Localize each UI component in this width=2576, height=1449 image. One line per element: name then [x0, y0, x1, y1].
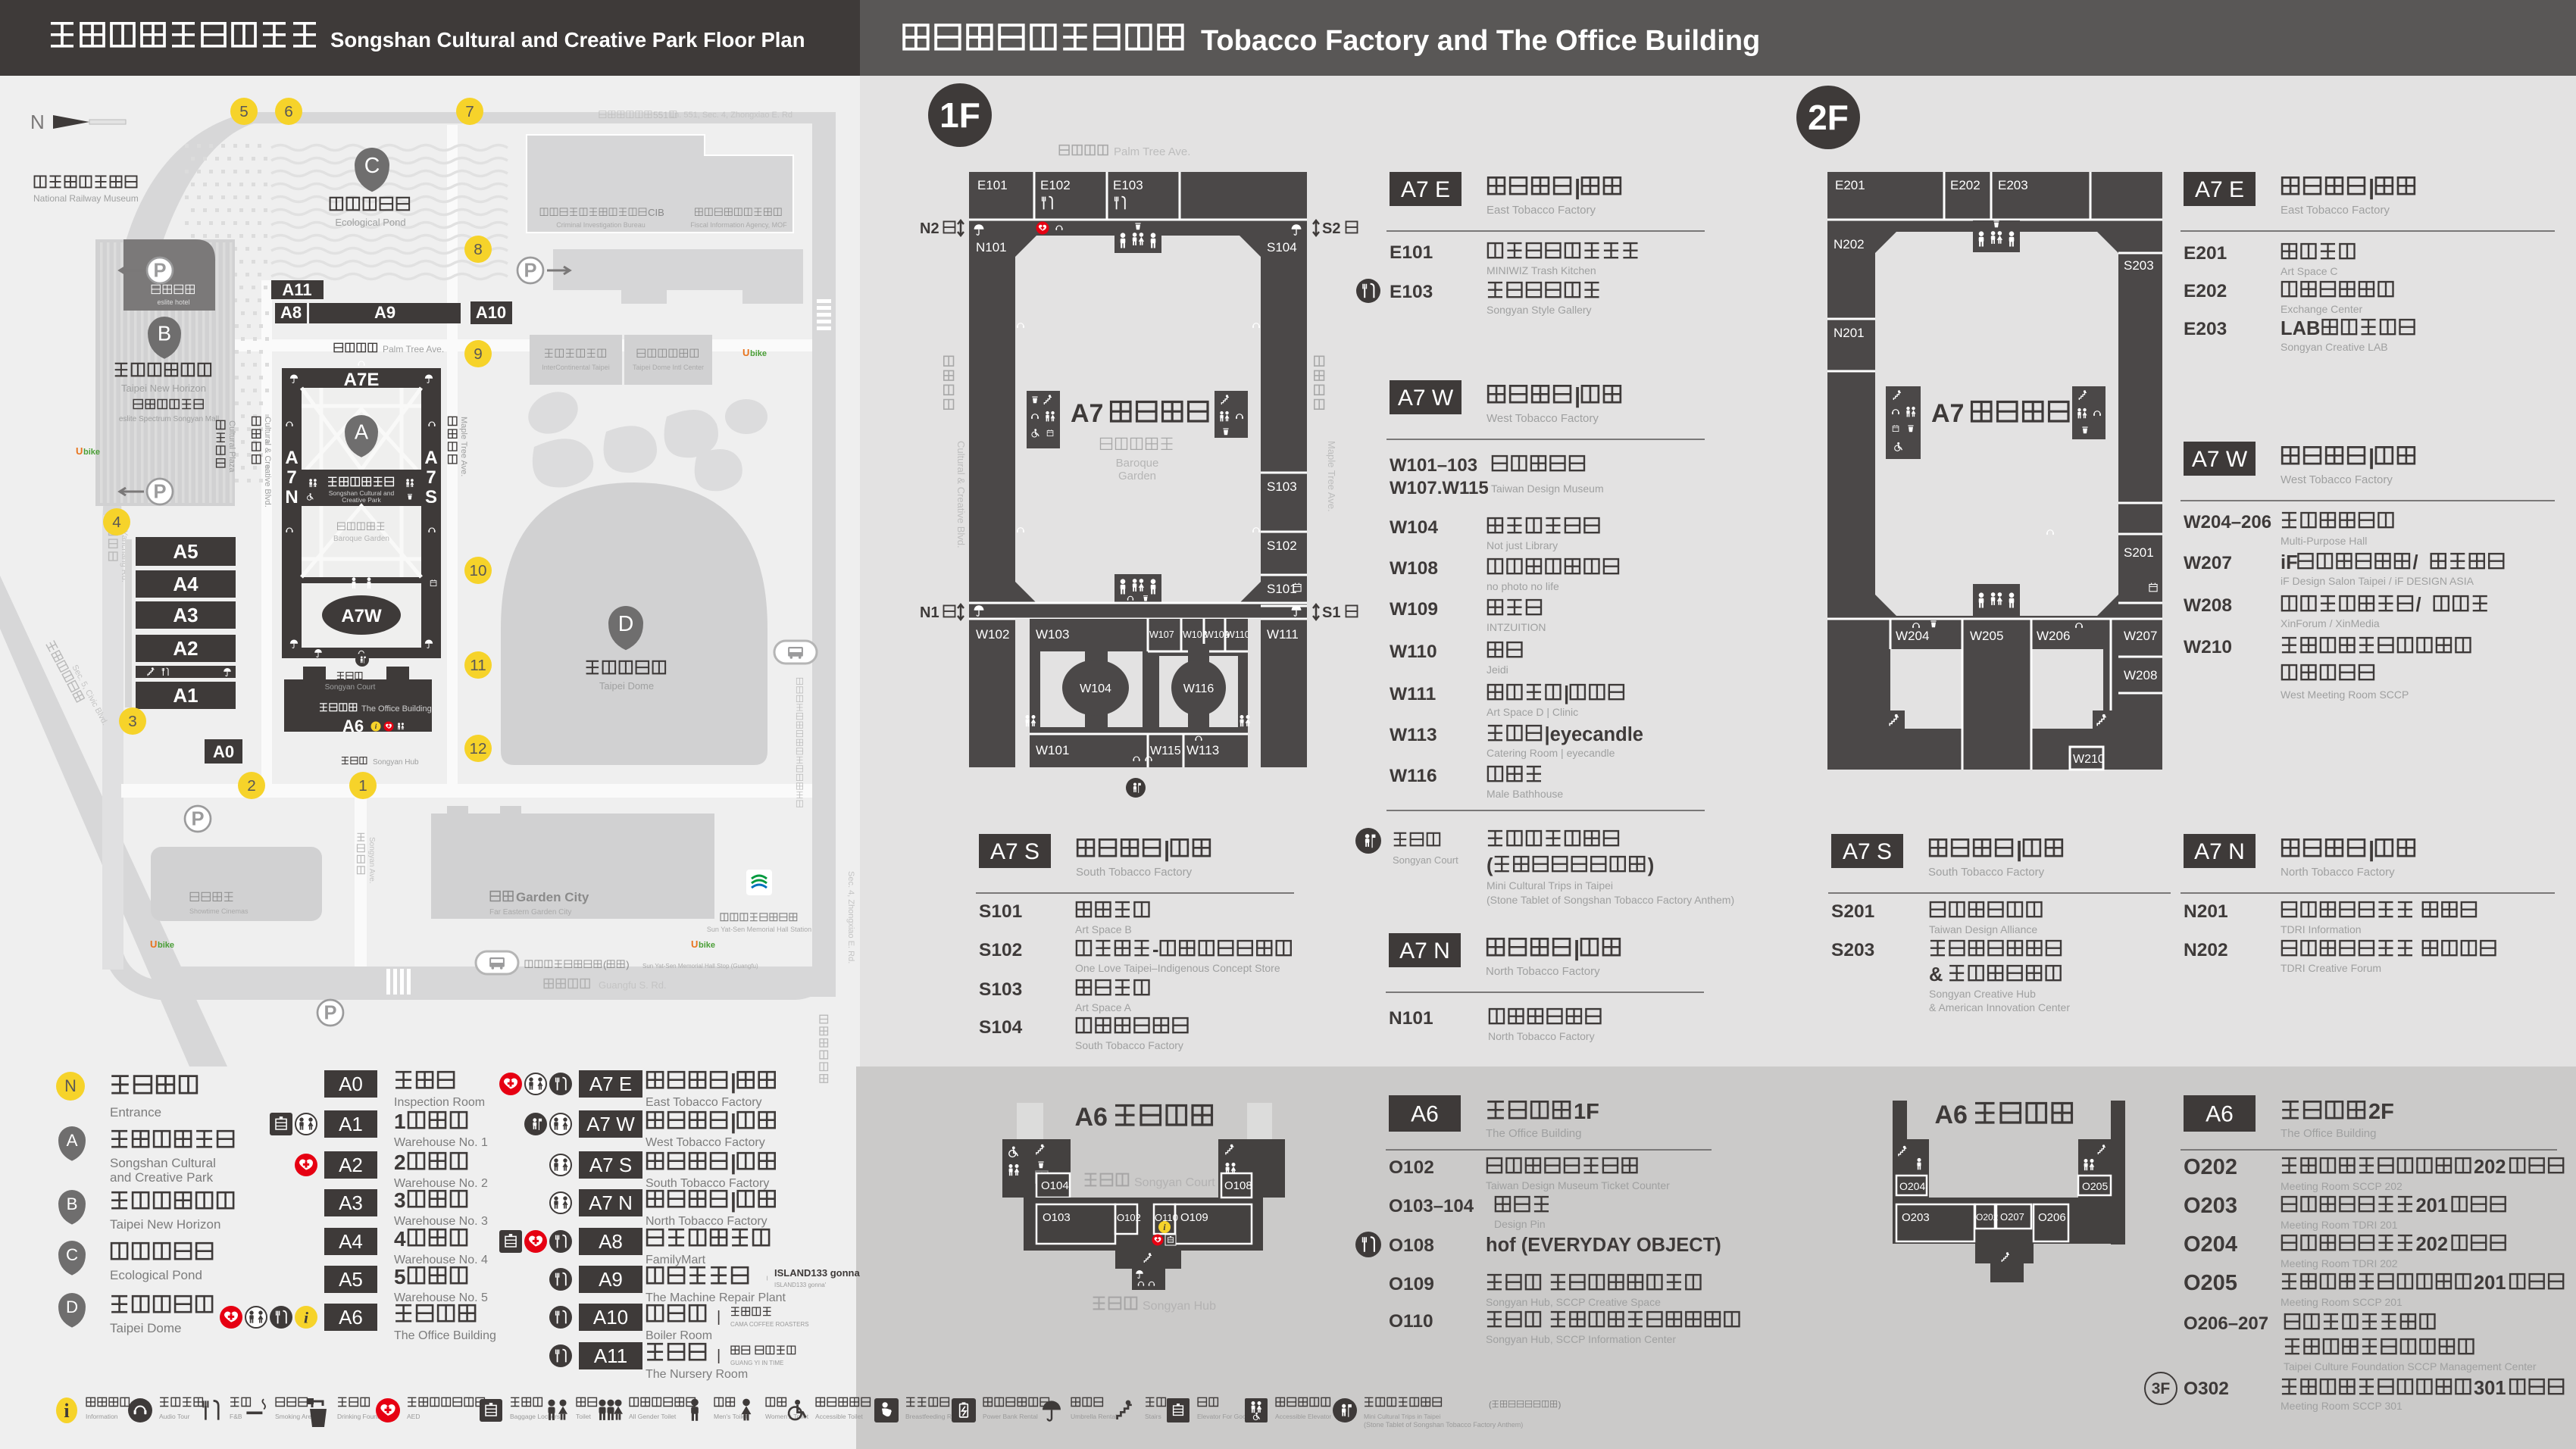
svg-text:S101: S101 — [1267, 582, 1297, 596]
svg-text:1F: 1F — [939, 95, 980, 135]
svg-text:bike: bike — [83, 448, 100, 457]
svg-text:B: B — [158, 322, 171, 345]
svg-text:7: 7 — [465, 103, 474, 120]
svg-text:The Machine Repair Plant: The Machine Repair Plant — [646, 1291, 786, 1304]
svg-text:The Office Building: The Office Building — [394, 1329, 496, 1342]
svg-text:202: 202 — [2416, 1234, 2449, 1255]
svg-text:Taipei New Horizon: Taipei New Horizon — [121, 383, 206, 394]
svg-text:P: P — [191, 809, 204, 830]
svg-text:A6: A6 — [2206, 1102, 2234, 1127]
svg-text:Exchange Center: Exchange Center — [2281, 303, 2363, 315]
svg-text:O206–207: O206–207 — [2184, 1313, 2268, 1334]
svg-text:A3: A3 — [339, 1191, 363, 1214]
svg-text:11: 11 — [470, 657, 486, 674]
svg-text:P: P — [524, 261, 536, 282]
svg-text:W107: W107 — [1149, 629, 1174, 640]
svg-text:Accessible Elevator: Accessible Elevator — [1275, 1413, 1331, 1420]
svg-text:Creative Park: Creative Park — [342, 496, 381, 504]
svg-text:Songyan Court: Songyan Court — [1134, 1176, 1215, 1189]
svg-text:1F: 1F — [1574, 1100, 1599, 1124]
svg-text:Toilet: Toilet — [576, 1413, 591, 1420]
svg-text:LAB: LAB — [2281, 318, 2320, 339]
svg-text:O203: O203 — [2184, 1194, 2237, 1218]
svg-text:W110: W110 — [1226, 629, 1250, 640]
svg-text:O108: O108 — [1389, 1235, 1434, 1256]
svg-text:O207: O207 — [2000, 1211, 2024, 1223]
svg-text:W204: W204 — [1896, 629, 1929, 643]
svg-text:GUANG YI IN TIME: GUANG YI IN TIME — [730, 1360, 783, 1366]
svg-text:3F: 3F — [2152, 1380, 2171, 1397]
svg-text:Songshan Cultural: Songshan Cultural — [110, 1156, 216, 1170]
svg-text:Stairs: Stairs — [1145, 1413, 1161, 1420]
svg-text:U: U — [691, 938, 698, 950]
svg-text:A7 E: A7 E — [589, 1073, 632, 1095]
svg-text:O202: O202 — [2184, 1155, 2237, 1179]
svg-text:AED: AED — [407, 1413, 420, 1420]
svg-text:E201: E201 — [2184, 243, 2227, 264]
svg-text:A6: A6 — [1411, 1102, 1439, 1127]
svg-text:Songshan Cultural and Creative: Songshan Cultural and Creative Park Floo… — [330, 28, 805, 52]
svg-text:A6: A6 — [1075, 1103, 1108, 1132]
svg-text:Ln. 551, Sec. 4, Zhongxiao E.: Ln. 551, Sec. 4, Zhongxiao E. Rd — [670, 111, 792, 120]
svg-text:A: A — [355, 420, 369, 444]
svg-text:Taipei Culture Foundation SCCP: Taipei Culture Foundation SCCP Managemen… — [2284, 1360, 2537, 1372]
svg-text:|: | — [730, 1188, 736, 1212]
svg-text:All Gender Toilet: All Gender Toilet — [629, 1413, 677, 1420]
svg-text:no photo no life: no photo no life — [1487, 580, 1559, 592]
svg-text:N1: N1 — [920, 604, 939, 621]
svg-text:U: U — [150, 938, 157, 950]
svg-text:N201: N201 — [2184, 901, 2228, 922]
svg-text:U: U — [76, 445, 83, 457]
svg-text:and Creative Park: and Creative Park — [110, 1170, 214, 1185]
svg-text:Design Pin: Design Pin — [1494, 1218, 1546, 1230]
svg-text:A7 E: A7 E — [1401, 177, 1450, 202]
svg-text:Songyan Hub: Songyan Hub — [373, 758, 419, 767]
svg-text:Cultural Plaza: Cultural Plaza — [227, 420, 236, 473]
svg-text:eslite hotel: eslite hotel — [157, 298, 189, 306]
svg-text:Taiwan Design Alliance: Taiwan Design Alliance — [1929, 923, 2037, 935]
svg-text:Power Bank Rental: Power Bank Rental — [983, 1413, 1038, 1420]
svg-text:A7E: A7E — [344, 370, 380, 390]
svg-text:W206: W206 — [2037, 629, 2070, 643]
svg-text:S103: S103 — [1267, 479, 1297, 494]
svg-text:E101: E101 — [1390, 242, 1433, 263]
svg-text:O205: O205 — [2082, 1180, 2108, 1192]
svg-text:Meeting Room SCCP 301: Meeting Room SCCP 301 — [2281, 1400, 2402, 1412]
svg-text:W107.W115: W107.W115 — [1390, 478, 1489, 498]
svg-text:Songyan Court: Songyan Court — [325, 683, 376, 692]
svg-text:Warehouse No. 1: Warehouse No. 1 — [394, 1136, 488, 1149]
svg-text:(: ( — [1487, 855, 1493, 876]
svg-text:Cultural & Creative Blvd.: Cultural & Creative Blvd. — [263, 417, 272, 507]
svg-text:S201: S201 — [2124, 545, 2154, 560]
svg-text:4: 4 — [112, 514, 121, 531]
svg-text:Palm Tree Ave.: Palm Tree Ave. — [1114, 145, 1190, 158]
svg-text:A7 N: A7 N — [589, 1191, 633, 1214]
svg-text:Taiwan Design Museum: Taiwan Design Museum — [1491, 482, 1604, 495]
svg-text:South Tobacco Factory: South Tobacco Factory — [646, 1177, 769, 1190]
svg-text:Audio Tour: Audio Tour — [159, 1413, 190, 1420]
svg-text:201: 201 — [2416, 1195, 2449, 1216]
svg-text:W116: W116 — [1390, 766, 1437, 786]
svg-text:E202: E202 — [1950, 178, 1980, 192]
svg-text:A8: A8 — [280, 303, 302, 322]
svg-text:Art Space D | Clinic: Art Space D | Clinic — [1487, 706, 1578, 718]
svg-text:The Office Building: The Office Building — [361, 704, 432, 714]
svg-text:Baroque Garden: Baroque Garden — [333, 535, 389, 543]
svg-text:/: / — [2413, 552, 2418, 573]
svg-text:P: P — [324, 1003, 336, 1024]
svg-text:W207: W207 — [2124, 629, 2157, 643]
svg-text:E102: E102 — [1040, 178, 1071, 192]
svg-text:W108: W108 — [1390, 558, 1438, 579]
svg-text:A7: A7 — [1071, 399, 1103, 428]
svg-text:Taipei Dome: Taipei Dome — [599, 680, 654, 692]
svg-text:): ) — [1648, 855, 1655, 876]
svg-text:W210: W210 — [2073, 753, 2105, 766]
svg-text:(Stone Tablet of Songshan Toba: (Stone Tablet of Songshan Tobacco Factor… — [1487, 894, 1734, 906]
svg-text:Garden City: Garden City — [516, 890, 589, 904]
svg-text:202: 202 — [2474, 1157, 2506, 1178]
svg-text:Songyan Hub, SCCP Information: Songyan Hub, SCCP Information Center — [1486, 1333, 1676, 1345]
svg-text:Ecological Pond: Ecological Pond — [335, 217, 405, 228]
svg-text:A3: A3 — [173, 604, 198, 626]
svg-text:Maple Tree Ave.: Maple Tree Ave. — [459, 417, 468, 476]
svg-text:West Meeting Room SCCP: West Meeting Room SCCP — [2281, 689, 2409, 701]
svg-text:A0: A0 — [213, 742, 234, 761]
svg-text:A5: A5 — [339, 1268, 363, 1291]
svg-text:& American Innovation Center: & American Innovation Center — [1929, 1001, 2070, 1013]
svg-text:4: 4 — [394, 1227, 406, 1251]
svg-text:S203: S203 — [1831, 940, 1874, 960]
svg-text:Meeting Room SCCP 202: Meeting Room SCCP 202 — [2281, 1180, 2402, 1192]
svg-text:i: i — [304, 1309, 308, 1327]
svg-text:bike: bike — [699, 941, 715, 950]
svg-text:Smoking Area: Smoking Area — [275, 1413, 315, 1420]
svg-text:Accessible Toilet: Accessible Toilet — [815, 1413, 863, 1420]
svg-text:A4: A4 — [339, 1230, 363, 1253]
svg-text:Elevator For Goods: Elevator For Goods — [1197, 1413, 1253, 1420]
svg-text:West Tobacco Factory: West Tobacco Factory — [646, 1136, 765, 1149]
svg-text:W110: W110 — [1390, 642, 1437, 662]
svg-text:ISLAND133 gonna: ISLAND133 gonna — [774, 1267, 860, 1279]
svg-text:A2: A2 — [339, 1154, 363, 1176]
svg-text:O204: O204 — [1899, 1180, 1925, 1192]
svg-text:CIB: CIB — [648, 207, 664, 218]
svg-text:O103–104: O103–104 — [1389, 1196, 1474, 1216]
svg-text:|: | — [2368, 445, 2374, 470]
svg-text:S102: S102 — [1267, 539, 1297, 553]
svg-text:East Tobacco Factory: East Tobacco Factory — [2281, 204, 2390, 217]
svg-text:Art Space B: Art Space B — [1075, 923, 1132, 935]
svg-text:Taipei New Horizon: Taipei New Horizon — [110, 1217, 220, 1232]
svg-text:West Tobacco Factory: West Tobacco Factory — [1487, 412, 1599, 425]
svg-text:W108: W108 — [1183, 629, 1208, 640]
svg-text:W101–103: W101–103 — [1390, 455, 1477, 476]
svg-text:N: N — [64, 1076, 77, 1095]
svg-text:|: | — [2368, 176, 2374, 200]
svg-text:Songyan Style Gallery: Songyan Style Gallery — [1487, 304, 1592, 316]
svg-text:|: | — [2368, 838, 2374, 862]
svg-text:O203: O203 — [1902, 1211, 1930, 1224]
svg-text:(: ( — [1489, 1401, 1492, 1410]
svg-text:South Tobacco Factory: South Tobacco Factory — [1928, 866, 2045, 879]
svg-text:E202: E202 — [2184, 281, 2227, 301]
svg-text:C: C — [66, 1245, 78, 1264]
svg-text:National Railway Museum: National Railway Museum — [33, 193, 139, 204]
svg-text:A7 S: A7 S — [1843, 839, 1892, 864]
svg-text:W111: W111 — [1267, 627, 1299, 642]
svg-text:E101: E101 — [977, 178, 1008, 192]
svg-text:S1: S1 — [1322, 604, 1340, 621]
svg-text:2F: 2F — [2368, 1100, 2394, 1124]
svg-text:iF: iF — [2281, 552, 2298, 573]
svg-text:W113: W113 — [1390, 725, 1437, 745]
svg-text:201: 201 — [2474, 1273, 2506, 1294]
svg-text:A7W: A7W — [341, 606, 382, 626]
svg-text:West Tobacco Factory: West Tobacco Factory — [2281, 473, 2393, 486]
svg-text:Warehouse No. 3: Warehouse No. 3 — [394, 1215, 488, 1228]
svg-text:Ecological Pond: Ecological Pond — [110, 1268, 202, 1282]
svg-text:InterContinental Taipei: InterContinental Taipei — [542, 364, 609, 371]
svg-text:W205: W205 — [1970, 629, 2003, 643]
svg-text:Multi-Purpose Hall: Multi-Purpose Hall — [2281, 535, 2367, 547]
svg-text:A7 E: A7 E — [2195, 177, 2244, 202]
svg-text:E103: E103 — [1113, 178, 1143, 192]
svg-text:P: P — [153, 482, 166, 503]
svg-text:A0: A0 — [339, 1073, 363, 1095]
svg-text:W208: W208 — [2184, 595, 2232, 616]
svg-text:W109: W109 — [1390, 599, 1438, 620]
svg-text:O109: O109 — [1180, 1211, 1208, 1224]
svg-text:North Tobacco Factory: North Tobacco Factory — [646, 1215, 767, 1228]
svg-text:Criminal Investigation Bureau: Criminal Investigation Bureau — [556, 221, 646, 229]
svg-text:Inspection Room: Inspection Room — [394, 1096, 485, 1109]
svg-text:Warehouse No. 5: Warehouse No. 5 — [394, 1291, 488, 1304]
svg-text:1: 1 — [394, 1110, 406, 1133]
svg-text:A: A — [424, 448, 437, 468]
svg-text:South Tobacco Factory: South Tobacco Factory — [1076, 866, 1193, 879]
svg-text:&: & — [1929, 964, 1943, 985]
svg-text:5: 5 — [239, 103, 249, 120]
svg-text:A9: A9 — [599, 1268, 623, 1291]
svg-text:Songyan Ave.: Songyan Ave. — [367, 837, 376, 884]
svg-text:Not just Library: Not just Library — [1487, 539, 1558, 551]
svg-text:O102: O102 — [1117, 1212, 1141, 1223]
svg-text:iF Design Salon Taipei / iF DE: iF Design Salon Taipei / iF DESIGN ASIA — [2281, 575, 2474, 587]
svg-text:|: | — [1574, 384, 1580, 408]
svg-text:CAMA COFFEE ROASTERS: CAMA COFFEE ROASTERS — [730, 1321, 809, 1328]
svg-text:2F: 2F — [1808, 98, 1849, 137]
svg-text:N202: N202 — [2184, 940, 2228, 960]
svg-text:D: D — [618, 612, 634, 636]
svg-text:W111: W111 — [1390, 684, 1436, 704]
svg-text:2: 2 — [394, 1151, 406, 1174]
svg-text:|: | — [717, 1309, 721, 1326]
svg-text:A1: A1 — [339, 1113, 363, 1135]
svg-text:W104: W104 — [1390, 517, 1438, 538]
svg-text:Warehouse No. 4: Warehouse No. 4 — [394, 1254, 488, 1266]
svg-text:W116: W116 — [1183, 682, 1215, 695]
svg-text:O104: O104 — [1041, 1179, 1069, 1192]
svg-text:(Stone Tablet of Songshan Toba: (Stone Tablet of Songshan Tobacco Factor… — [1364, 1421, 1523, 1429]
svg-text:Jeidi: Jeidi — [1487, 664, 1508, 676]
svg-text:TDRI Information: TDRI Information — [2281, 923, 2362, 935]
svg-text:Entrance: Entrance — [110, 1105, 161, 1120]
svg-text:A6: A6 — [342, 717, 364, 735]
svg-text:Mini Cultural Trips in Taipei: Mini Cultural Trips in Taipei — [1364, 1413, 1441, 1420]
svg-text:|: | — [1164, 838, 1170, 862]
svg-text:A5: A5 — [173, 540, 198, 563]
svg-text:Art Space C: Art Space C — [2281, 265, 2337, 277]
svg-text:Garden: Garden — [1118, 470, 1156, 482]
svg-text:S103: S103 — [979, 979, 1022, 1000]
svg-text:A10: A10 — [593, 1306, 628, 1329]
svg-text:3: 3 — [394, 1188, 406, 1212]
svg-text:|eyecandle: |eyecandle — [1545, 724, 1643, 745]
svg-text:A11: A11 — [282, 280, 311, 299]
svg-text:W103: W103 — [1036, 627, 1069, 642]
svg-text:N: N — [30, 111, 45, 133]
svg-text:N2: N2 — [920, 220, 939, 237]
svg-text:One Love Taipei–Indigenous Con: One Love Taipei–Indigenous Concept Store — [1075, 962, 1280, 974]
svg-text:U: U — [742, 347, 749, 358]
svg-text:|: | — [730, 1151, 736, 1174]
svg-text:A7 W: A7 W — [2192, 447, 2248, 472]
svg-text:A7 N: A7 N — [2194, 839, 2245, 864]
svg-text:S2: S2 — [1322, 220, 1340, 237]
svg-text:A9: A9 — [374, 303, 395, 322]
svg-text:Songyan Creative LAB: Songyan Creative LAB — [2281, 341, 2388, 353]
svg-text:A1: A1 — [173, 684, 198, 707]
svg-text:bike: bike — [158, 941, 174, 950]
svg-text:E103: E103 — [1390, 282, 1433, 302]
svg-text:TDRI Creative Forum: TDRI Creative Forum — [2281, 962, 2381, 974]
svg-text:Palm Tree Ave.: Palm Tree Ave. — [383, 344, 444, 354]
svg-text:Cultural & Creative Blvd.: Cultural & Creative Blvd. — [955, 441, 967, 548]
svg-text:ISLAND133 gonna': ISLAND133 gonna' — [774, 1282, 827, 1288]
svg-text:N101: N101 — [1389, 1008, 1433, 1029]
svg-text:O202: O202 — [1976, 1212, 1999, 1223]
svg-text:O204: O204 — [2184, 1232, 2237, 1257]
svg-text:6: 6 — [284, 103, 293, 120]
svg-text:Information: Information — [86, 1413, 118, 1420]
svg-text:|: | — [1574, 937, 1580, 961]
svg-text:Songyan Creative Hub: Songyan Creative Hub — [1929, 988, 2036, 1000]
svg-text:W104: W104 — [1080, 682, 1111, 695]
svg-text:S104: S104 — [979, 1017, 1023, 1038]
svg-text:W102: W102 — [976, 627, 1009, 642]
svg-text:A11: A11 — [594, 1344, 627, 1367]
svg-text:(: ( — [603, 959, 607, 970]
svg-text:Guangfu S. Rd.: Guangfu S. Rd. — [599, 979, 667, 991]
svg-text:Songyan Hub: Songyan Hub — [1143, 1300, 1216, 1313]
svg-text:hof (EVERYDAY OBJECT): hof (EVERYDAY OBJECT) — [1486, 1235, 1721, 1256]
svg-text:The Office Building: The Office Building — [2281, 1127, 2376, 1140]
svg-text:S101: S101 — [979, 901, 1022, 922]
svg-text:|: | — [717, 1348, 721, 1364]
svg-text:bike: bike — [750, 349, 767, 358]
svg-text:N: N — [285, 487, 298, 507]
svg-text:N202: N202 — [1834, 237, 1865, 251]
svg-text:i: i — [375, 723, 377, 731]
svg-text:Songyan Court: Songyan Court — [1393, 854, 1458, 866]
svg-text:Showtime Cinemas: Showtime Cinemas — [189, 907, 249, 915]
svg-text:Fiscal Information Agency, MOF: Fiscal Information Agency, MOF — [690, 221, 787, 229]
svg-text:Taipei Dome: Taipei Dome — [110, 1321, 182, 1335]
svg-text:3: 3 — [128, 713, 137, 730]
svg-text:E201: E201 — [1835, 178, 1865, 192]
svg-text:Baroque: Baroque — [1116, 457, 1159, 470]
svg-text:|: | — [730, 1110, 736, 1133]
svg-text:|: | — [2016, 838, 2022, 862]
svg-text:W115: W115 — [1150, 745, 1181, 757]
svg-text:7: 7 — [286, 467, 296, 488]
svg-text:Meeting Room TDRI 201: Meeting Room TDRI 201 — [2281, 1219, 2398, 1231]
svg-text:A: A — [67, 1131, 78, 1150]
svg-text:-: - — [1152, 939, 1159, 960]
svg-text:O302: O302 — [2184, 1379, 2229, 1399]
svg-text:INTZUITION: INTZUITION — [1487, 621, 1546, 633]
svg-text:Meeting Room SCCP 201: Meeting Room SCCP 201 — [2281, 1296, 2402, 1308]
svg-text:Umbrella Rental: Umbrella Rental — [1071, 1413, 1117, 1420]
svg-text:W204–206: W204–206 — [2184, 512, 2271, 532]
svg-text:Songyan Hub, SCCP Creative Spa: Songyan Hub, SCCP Creative Space — [1486, 1296, 1661, 1308]
svg-text:A7 W: A7 W — [586, 1113, 635, 1135]
svg-text:eslite Spectrum Songyan Mall: eslite Spectrum Songyan Mall — [119, 415, 219, 423]
svg-text:South Tobacco Factory: South Tobacco Factory — [1075, 1039, 1183, 1051]
svg-text:A: A — [285, 448, 298, 468]
svg-text:O205: O205 — [2184, 1271, 2237, 1295]
svg-text:A7: A7 — [1931, 399, 1964, 428]
svg-text:W101: W101 — [1036, 743, 1069, 757]
svg-text:i: i — [64, 1400, 69, 1422]
svg-text:Far Eastern Garden City: Far Eastern Garden City — [489, 908, 571, 917]
svg-text:N101: N101 — [976, 240, 1007, 255]
svg-text:F&B: F&B — [230, 1413, 242, 1420]
svg-text:O108: O108 — [1224, 1179, 1252, 1192]
svg-text:W207: W207 — [2184, 553, 2232, 573]
svg-text:XinForum / XinMedia: XinForum / XinMedia — [2281, 617, 2380, 629]
svg-text:10: 10 — [469, 562, 486, 579]
svg-text:D: D — [66, 1298, 78, 1316]
svg-text:A10: A10 — [476, 303, 506, 322]
svg-text:A7 S: A7 S — [990, 839, 1039, 864]
svg-text:8: 8 — [474, 241, 483, 258]
svg-text:/: / — [2416, 595, 2421, 616]
svg-text:|: | — [730, 1070, 736, 1093]
svg-text:A6: A6 — [339, 1306, 363, 1329]
svg-text:A7 N: A7 N — [1399, 938, 1450, 963]
svg-text:7: 7 — [426, 467, 436, 488]
svg-text:O206: O206 — [2038, 1211, 2066, 1224]
svg-text:Male Bathhouse: Male Bathhouse — [1487, 788, 1563, 800]
svg-text:B: B — [67, 1194, 78, 1213]
svg-text:Mini Cultural Trips in Taipei: Mini Cultural Trips in Taipei — [1487, 879, 1613, 892]
svg-text:C: C — [364, 154, 380, 178]
svg-text:P: P — [153, 261, 166, 282]
svg-text:Taiwan Design Museum Ticket Co: Taiwan Design Museum Ticket Counter — [1486, 1179, 1670, 1191]
svg-text:Catering Room | eyecandle: Catering Room | eyecandle — [1487, 747, 1615, 759]
svg-text:S: S — [425, 487, 437, 507]
svg-text:Art Space A: Art Space A — [1075, 1001, 1132, 1013]
svg-text:FamilyMart: FamilyMart — [646, 1254, 706, 1266]
svg-text:MINIWIZ Trash Kitchen: MINIWIZ Trash Kitchen — [1487, 264, 1596, 276]
svg-text:1: 1 — [358, 777, 367, 795]
svg-text:Warehouse No. 2: Warehouse No. 2 — [394, 1177, 488, 1190]
svg-text:The Office Building: The Office Building — [1486, 1127, 1581, 1140]
